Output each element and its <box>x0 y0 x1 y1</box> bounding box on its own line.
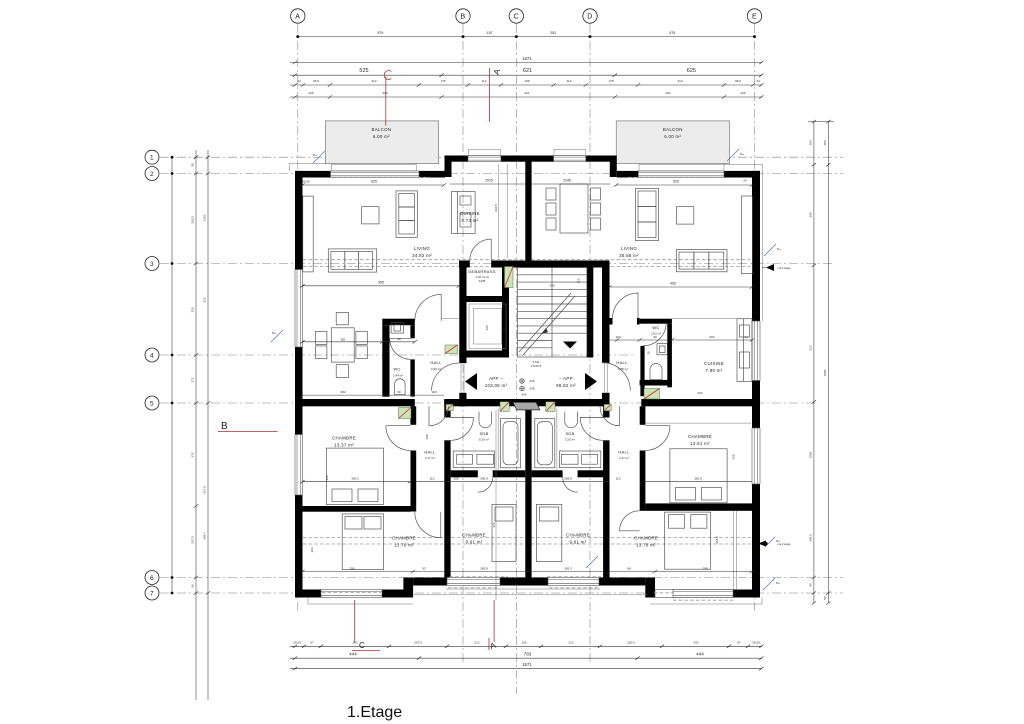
svg-text:14: 14 <box>744 335 748 339</box>
svg-text:112: 112 <box>482 79 487 83</box>
svg-text:285.8: 285.8 <box>480 567 488 571</box>
svg-text:DEBARRASS: DEBARRASS <box>468 269 495 274</box>
svg-text:330: 330 <box>191 307 195 312</box>
svg-text:444: 444 <box>696 651 704 656</box>
svg-text:96.5: 96.5 <box>735 79 741 83</box>
svg-text:125: 125 <box>308 91 313 95</box>
svg-text:348.7: 348.7 <box>203 532 207 540</box>
svg-text:2345: 2345 <box>563 179 571 183</box>
svg-text:5.20 m²: 5.20 m² <box>565 438 575 442</box>
svg-text:A: A <box>295 13 300 20</box>
svg-text:382: 382 <box>340 390 345 394</box>
svg-text:HALL: HALL <box>616 360 628 365</box>
svg-text:180: 180 <box>502 327 506 332</box>
svg-text:783: 783 <box>524 651 532 656</box>
svg-text:4.17 m²: 4.17 m² <box>619 456 629 460</box>
svg-text:29,29: 29,29 <box>293 641 301 645</box>
svg-text:20,20: 20,20 <box>302 180 310 184</box>
svg-text:393: 393 <box>310 547 314 552</box>
svg-text:220.5: 220.5 <box>627 641 635 645</box>
svg-text:35.68 m²: 35.68 m² <box>619 253 639 258</box>
svg-text:CUISINE: CUISINE <box>460 211 480 216</box>
svg-text:212: 212 <box>568 641 573 645</box>
svg-text:110: 110 <box>616 477 621 481</box>
svg-text:365: 365 <box>732 454 736 459</box>
svg-text:– APP: – APP <box>559 376 573 381</box>
svg-text:4.17 m²: 4.17 m² <box>425 456 435 460</box>
svg-text:202: 202 <box>709 335 714 339</box>
svg-text:400: 400 <box>665 91 670 95</box>
svg-text:382.5: 382.5 <box>351 477 359 481</box>
svg-text:WC: WC <box>393 367 400 372</box>
svg-text:1671: 1671 <box>522 56 532 61</box>
svg-text:9.61 m²: 9.61 m² <box>466 540 483 545</box>
svg-text:212: 212 <box>474 641 479 645</box>
svg-text:ma 2 etage: ma 2 etage <box>778 542 792 546</box>
svg-text:ma 2 etage: ma 2 etage <box>778 266 792 270</box>
svg-text:LIVING: LIVING <box>414 246 430 251</box>
svg-text:579: 579 <box>669 31 675 35</box>
svg-text:SDB: SDB <box>479 431 488 436</box>
svg-text:212: 212 <box>203 297 207 302</box>
svg-text:312: 312 <box>677 79 682 83</box>
svg-text:9.61 m²: 9.61 m² <box>570 540 587 545</box>
svg-text:110: 110 <box>430 477 435 481</box>
svg-text:CHAMBRE: CHAMBRE <box>462 533 486 538</box>
svg-text:HALL: HALL <box>424 450 436 455</box>
svg-text:525: 525 <box>673 180 679 184</box>
svg-text:34.92 m²: 34.92 m² <box>412 253 432 258</box>
svg-text:C: C <box>359 641 365 650</box>
svg-text:150: 150 <box>823 140 827 145</box>
svg-text:56: 56 <box>191 584 195 588</box>
svg-text:425: 425 <box>521 393 526 397</box>
svg-text:366.5: 366.5 <box>715 536 719 544</box>
svg-text:CHAMBRE: CHAMBRE <box>634 536 658 541</box>
svg-text:7.90 m²: 7.90 m² <box>706 368 723 373</box>
svg-text:360: 360 <box>425 434 429 439</box>
svg-text:621: 621 <box>524 91 529 95</box>
svg-text:56: 56 <box>809 583 813 587</box>
svg-text:126: 126 <box>521 641 526 645</box>
svg-text:207.5: 207.5 <box>414 641 422 645</box>
svg-text:955: 955 <box>378 281 384 285</box>
svg-text:252: 252 <box>550 31 556 35</box>
svg-text:2: 2 <box>150 171 154 178</box>
svg-text:245: 245 <box>529 379 534 383</box>
svg-text:D: D <box>587 13 592 20</box>
svg-text:96.5: 96.5 <box>313 79 319 83</box>
svg-text:93: 93 <box>422 567 426 571</box>
svg-text:35: 35 <box>647 351 651 355</box>
svg-text:627.5: 627.5 <box>203 486 207 494</box>
svg-text:965: 965 <box>670 282 676 286</box>
svg-text:N9: N9 <box>627 567 631 571</box>
svg-text:110: 110 <box>577 278 581 283</box>
svg-text:285.8: 285.8 <box>480 477 488 481</box>
svg-text:187: 187 <box>487 31 493 35</box>
svg-text:6.00 m²: 6.00 m² <box>664 134 681 139</box>
svg-text:372: 372 <box>604 517 608 522</box>
svg-text:285.3: 285.3 <box>564 567 572 571</box>
svg-text:160: 160 <box>615 335 620 339</box>
svg-text:HALL: HALL <box>618 450 630 455</box>
svg-text:372: 372 <box>191 452 195 457</box>
svg-text:13.37 m²: 13.37 m² <box>334 443 354 448</box>
svg-text:APP –: APP – <box>489 376 503 381</box>
svg-text:178: 178 <box>608 79 613 83</box>
svg-text:360: 360 <box>809 212 813 217</box>
svg-text:CUISINE: CUISINE <box>704 361 724 366</box>
svg-text:4.09 m²: 4.09 m² <box>431 367 441 371</box>
svg-text:2515: 2515 <box>485 179 493 183</box>
svg-text:312: 312 <box>371 79 376 83</box>
svg-text:112: 112 <box>567 79 572 83</box>
svg-text:B: B <box>221 421 228 432</box>
svg-text:1: 1 <box>150 155 154 162</box>
svg-text:103.05 m²: 103.05 m² <box>485 383 508 388</box>
svg-text:24: 24 <box>297 79 301 83</box>
svg-text:238: 238 <box>529 387 534 391</box>
svg-text:579: 579 <box>377 31 383 35</box>
svg-text:372: 372 <box>492 522 496 527</box>
svg-text:LIVING: LIVING <box>621 246 637 251</box>
svg-text:58: 58 <box>191 163 195 167</box>
svg-text:6.00 m²: 6.00 m² <box>373 134 390 139</box>
svg-text:24: 24 <box>756 79 760 83</box>
svg-text:525: 525 <box>371 180 377 184</box>
svg-text:50: 50 <box>823 596 827 600</box>
svg-text:13.76 m²: 13.76 m² <box>394 543 414 548</box>
svg-text:344.5: 344.5 <box>494 204 498 212</box>
svg-text:202: 202 <box>697 391 702 395</box>
svg-text:B: B <box>460 13 465 20</box>
svg-text:165: 165 <box>485 325 489 330</box>
svg-text:625: 625 <box>687 68 696 74</box>
svg-text:1655: 1655 <box>809 451 813 458</box>
svg-text:150: 150 <box>809 140 813 145</box>
svg-text:400: 400 <box>382 91 387 95</box>
svg-text:24: 24 <box>743 179 747 183</box>
svg-text:621: 621 <box>523 68 532 74</box>
svg-text:CHAMBRE: CHAMBRE <box>332 436 356 441</box>
svg-text:4: 4 <box>150 352 154 359</box>
svg-text:7: 7 <box>150 590 154 597</box>
svg-text:285.8: 285.8 <box>564 477 572 481</box>
svg-text:6: 6 <box>150 575 154 582</box>
svg-text:257.5: 257.5 <box>191 536 195 544</box>
svg-text:382: 382 <box>340 338 345 342</box>
svg-text:196: 196 <box>524 79 529 83</box>
svg-text:298: 298 <box>702 567 707 571</box>
svg-text:E: E <box>752 13 757 20</box>
svg-text:212: 212 <box>809 345 813 350</box>
svg-text:4.35 m²: 4.35 m² <box>618 367 628 371</box>
svg-text:318.5: 318.5 <box>191 216 195 224</box>
svg-text:5: 5 <box>150 400 154 407</box>
svg-text:298: 298 <box>349 567 354 571</box>
svg-text:160: 160 <box>431 390 436 394</box>
svg-text:17x26.5: 17x26.5 <box>531 364 542 368</box>
svg-text:67: 67 <box>737 641 741 645</box>
svg-text:382.5: 382.5 <box>694 477 702 481</box>
svg-text:242: 242 <box>352 641 357 645</box>
svg-text:67: 67 <box>310 641 314 645</box>
svg-text:BALCON: BALCON <box>371 127 391 132</box>
svg-text:90: 90 <box>397 337 401 341</box>
svg-text:1125: 1125 <box>203 214 207 221</box>
svg-text:C: C <box>514 13 519 20</box>
svg-text:98.82 m²: 98.82 m² <box>556 383 576 388</box>
svg-text:13.61 m²: 13.61 m² <box>690 441 710 446</box>
svg-text:29,29: 29,29 <box>752 641 760 645</box>
svg-text:242: 242 <box>693 641 698 645</box>
svg-text:366.5: 366.5 <box>809 534 813 542</box>
svg-text:CHAMBRE: CHAMBRE <box>392 536 416 541</box>
svg-text:1235: 1235 <box>479 279 486 283</box>
svg-text:360: 360 <box>325 475 329 480</box>
svg-text:SDB: SDB <box>565 431 574 436</box>
svg-text:763: 763 <box>524 567 529 571</box>
svg-text:90: 90 <box>397 390 401 394</box>
svg-text:126: 126 <box>740 91 745 95</box>
svg-text:444: 444 <box>349 651 357 656</box>
svg-text:2.44 m²: 2.44 m² <box>393 374 403 378</box>
svg-text:105: 105 <box>453 477 458 481</box>
svg-text:525: 525 <box>359 68 368 74</box>
svg-text:8.73 m²: 8.73 m² <box>462 218 479 223</box>
svg-text:13.76 m²: 13.76 m² <box>636 543 656 548</box>
svg-text:1.Etage: 1.Etage <box>347 704 402 721</box>
svg-text:BALCON: BALCON <box>663 127 683 132</box>
svg-text:172: 172 <box>191 377 195 382</box>
svg-text:175: 175 <box>440 79 445 83</box>
svg-text:90: 90 <box>653 335 657 339</box>
svg-text:WC: WC <box>652 325 659 330</box>
svg-text:3: 3 <box>150 261 154 268</box>
svg-text:HALL: HALL <box>430 360 442 365</box>
svg-text:5.20 m²: 5.20 m² <box>479 438 489 442</box>
svg-text:240: 240 <box>549 284 554 288</box>
svg-text:1671: 1671 <box>522 662 532 667</box>
svg-text:CHAMBRE: CHAMBRE <box>688 434 712 439</box>
svg-text:1500: 1500 <box>823 369 827 376</box>
svg-text:CHAMBRE: CHAMBRE <box>566 533 590 538</box>
